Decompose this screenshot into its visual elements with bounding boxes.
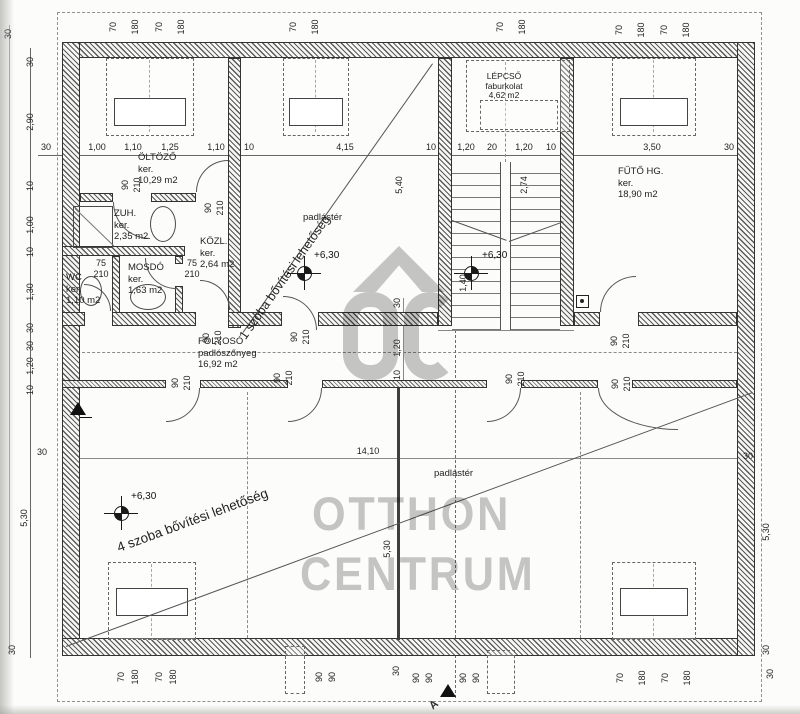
section-triangle-icon	[440, 684, 456, 697]
dim-label: 180	[176, 19, 186, 34]
dim-label: 90	[471, 673, 481, 683]
dim-label: 30	[724, 142, 734, 152]
room-label-lepcso: LÉPCSŐ faburkolat 4,62 m2	[468, 72, 540, 101]
wall-oltozo-bottom-b	[151, 193, 196, 202]
dim-label: 75	[187, 258, 197, 268]
dim-label: 1,30	[25, 283, 35, 301]
wall-corridor-bottom-5	[632, 380, 737, 388]
roof-window-sash	[620, 98, 688, 126]
dim-label: 180	[168, 669, 178, 684]
dim-label: 1,00	[88, 142, 106, 152]
dim-label: 10	[244, 142, 254, 152]
dim-label: 70	[660, 673, 670, 683]
dim-label: 90	[314, 672, 324, 682]
bottom-projection-1	[285, 646, 305, 694]
floorplan-canvas: OTTHON CENTRUM ÖLTÖZŐ ker. 10,29 m2 ZUH.…	[0, 0, 800, 714]
stair-skylight-inner	[480, 100, 558, 130]
room-label-futo: FŰTŐ HG. ker. 18,90 m2	[618, 166, 663, 201]
room-label-oltozo: ÖLTÖZŐ ker. 10,29 m2	[138, 152, 178, 187]
dim-label: 10	[25, 385, 35, 395]
dim-label: 90	[201, 333, 211, 343]
stair-landing-line	[438, 330, 574, 331]
dim-label: 180	[130, 669, 140, 684]
watermark-otthon: OTTHON	[312, 490, 511, 537]
dim-label: 180	[682, 670, 692, 685]
watermark-letter-c	[404, 292, 456, 380]
dim-label: 30	[761, 645, 771, 655]
dim-label: 90	[327, 672, 337, 682]
partition-dashed-1	[247, 392, 248, 638]
wall-corridor-top-5	[574, 312, 600, 326]
wall-outer-top	[62, 42, 738, 58]
dim-label: 10	[426, 142, 436, 152]
dim-label: 10	[392, 370, 402, 380]
dim-label: 1,20	[515, 142, 533, 152]
dim-label: 210	[284, 370, 294, 385]
dim-label: 90	[424, 673, 434, 683]
wall-bath-divider	[228, 58, 241, 328]
dim-label: 1,00	[25, 216, 35, 234]
dim-label: 75	[96, 258, 106, 268]
dim-label: 1,20	[25, 357, 35, 375]
dim-label: 1,20	[392, 339, 402, 357]
dim-label: 70	[154, 22, 164, 32]
dim-label: 210	[621, 333, 631, 348]
dim-label: 1,20	[457, 142, 475, 152]
dim-label: 3,50	[643, 142, 661, 152]
bottom-projection-2	[487, 650, 515, 694]
dim-label: 210	[215, 200, 225, 215]
dim-label: 180	[130, 19, 140, 34]
roof-window-sash	[289, 98, 343, 126]
dim-label: 90	[411, 673, 421, 683]
roof-window-sash	[620, 588, 688, 616]
dim-label: 2,90	[25, 113, 35, 131]
dim-line-left-outer	[9, 25, 10, 653]
dim-label: 30	[25, 57, 35, 67]
dim-label: 70	[154, 672, 164, 682]
room-label-mosdo: MOSDÓ ker. 1,63 m2	[128, 262, 164, 297]
wall-corridor-top-6	[638, 312, 737, 326]
section-triangle-icon	[70, 402, 86, 415]
dim-label: 2,74	[519, 176, 529, 194]
wall-wc-mosdo	[112, 256, 120, 314]
dim-label: 5,30	[19, 509, 29, 527]
survey-marker-icon	[114, 506, 129, 521]
dim-label: 30	[392, 298, 402, 308]
wall-outer-left	[62, 42, 80, 656]
dim-label: 180	[636, 22, 646, 37]
dim-label: 210	[132, 177, 142, 192]
dim-label: 30	[765, 669, 775, 679]
dim-label: 1,40	[458, 274, 468, 292]
dim-label: 14,10	[357, 446, 380, 456]
dim-label: 70	[659, 25, 669, 35]
dim-label: 90	[289, 332, 299, 342]
dim-label: 180	[637, 670, 647, 685]
room-label-kozl: KÖZL. ker. 2,64 m2	[200, 236, 234, 271]
dim-label: 90	[609, 336, 619, 346]
dim-label: 90	[504, 374, 514, 384]
dim-label: 70	[108, 22, 118, 32]
dim-line-14-10	[66, 458, 738, 459]
dim-label: 5,30	[761, 523, 771, 541]
dim-label: 70	[288, 22, 298, 32]
watermark-centrum: CENTRUM	[300, 550, 536, 597]
dim-label: 4,15	[336, 142, 354, 152]
dim-label: 90	[458, 673, 468, 683]
dim-label: 90	[203, 203, 213, 213]
dim-label: 10	[546, 142, 556, 152]
scan-edge-left	[0, 0, 14, 714]
dim-label: 30	[391, 666, 401, 676]
dim-label: 210	[182, 375, 192, 390]
dim-label: 90	[120, 180, 130, 190]
partition-dashed-2	[580, 392, 581, 638]
dim-label: 210	[622, 376, 632, 391]
level-label-bottom: +6,30	[131, 491, 156, 502]
level-label-top: +6,30	[314, 250, 339, 261]
dim-label: 30	[3, 29, 13, 39]
dim-line-left	[30, 48, 31, 658]
wall-corridor-bottom-1	[62, 380, 166, 388]
wall-corridor-top-1	[62, 312, 85, 326]
dim-label: 5,40	[394, 176, 404, 194]
dim-label: 30	[25, 341, 35, 351]
dim-label: 90	[170, 378, 180, 388]
dim-label: 210	[301, 329, 311, 344]
dim-label: 90	[610, 379, 620, 389]
wall-oltozo-bottom-a	[80, 193, 113, 202]
dim-label: 70	[615, 673, 625, 683]
dim-label: 210	[516, 371, 526, 386]
wall-outer-right	[737, 42, 755, 656]
dim-label: 210	[184, 269, 199, 279]
watermark-letter-o	[343, 292, 398, 380]
dim-label: 210	[93, 269, 108, 279]
wall-stair-left	[438, 58, 452, 326]
dim-label: 1,10	[124, 142, 142, 152]
room-label-zuh: ZUH. ker. 2,35 m2	[114, 208, 148, 243]
dim-label: 90	[272, 373, 282, 383]
room-label-attic-bottom: padlástér	[434, 468, 473, 480]
roof-window-sash	[116, 588, 188, 616]
wall-mosdo-kozl-a	[175, 256, 183, 264]
wall-corridor-bottom-3	[322, 380, 487, 388]
dim-label: 180	[310, 19, 320, 34]
dim-label: 180	[681, 22, 691, 37]
dim-label: 70	[614, 25, 624, 35]
wall-mosdo-kozl-b	[175, 286, 183, 314]
roof-window-sash	[114, 98, 186, 126]
wall-corridor-top-2	[112, 312, 196, 326]
wall-outer-bottom	[62, 638, 738, 656]
dim-label: 210	[213, 330, 223, 345]
dim-label: 1,10	[207, 142, 225, 152]
dim-label: 30	[743, 451, 753, 461]
dim-label: 10	[25, 181, 35, 191]
dim-label: 20	[487, 142, 497, 152]
stair-stringer	[500, 162, 511, 330]
bathtub-basin	[150, 206, 176, 242]
level-label-right: +6,30	[482, 250, 507, 261]
dim-label: 1,25	[161, 142, 179, 152]
dim-label: 10	[25, 247, 35, 257]
dim-label: 30	[41, 142, 51, 152]
dim-label: 5,30	[382, 540, 392, 558]
dim-label: 30	[25, 323, 35, 333]
dim-label: 180	[517, 19, 527, 34]
boiler-unit	[576, 295, 589, 308]
scan-edge-bottom	[0, 705, 800, 714]
dim-label: 70	[495, 22, 505, 32]
dim-label: 30	[7, 645, 17, 655]
dim-label: 30	[37, 447, 47, 457]
wall-corridor-bottom-4	[521, 380, 598, 388]
dim-label: 70	[116, 672, 126, 682]
